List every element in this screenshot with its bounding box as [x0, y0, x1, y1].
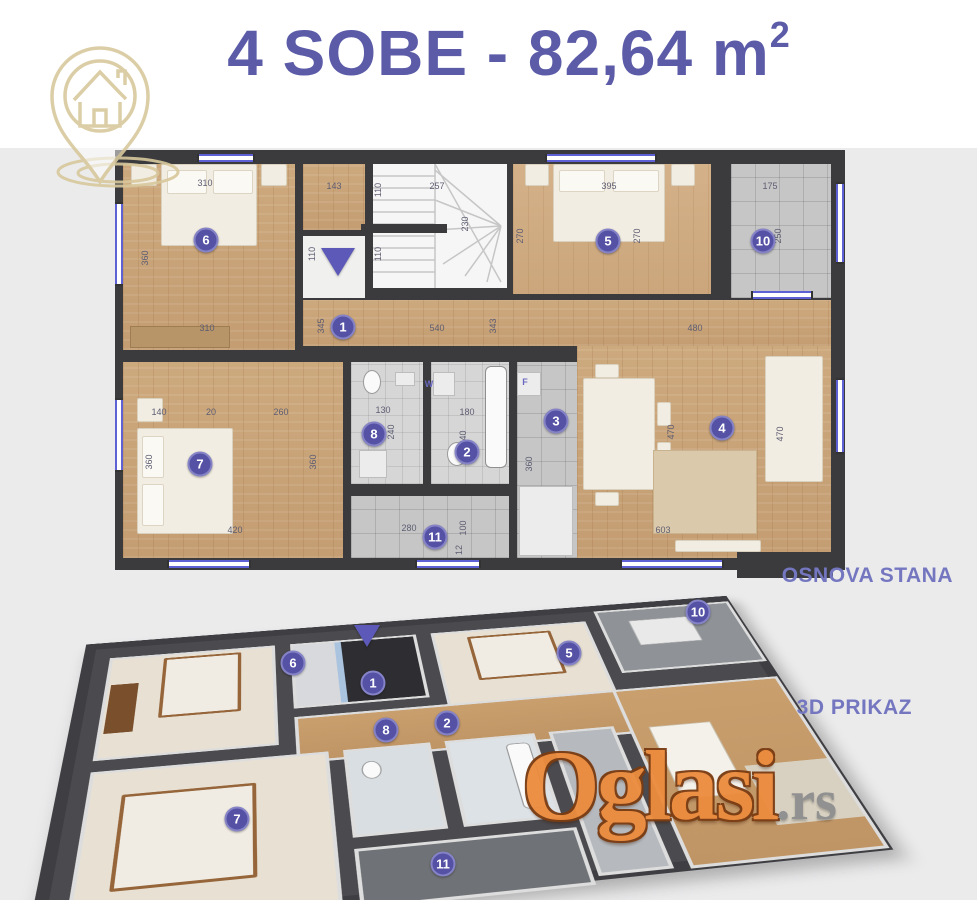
3d-room-7 [64, 751, 343, 900]
dim-label-140: 140 [151, 407, 166, 417]
3d-room-10-terrace [593, 601, 767, 673]
dim-label-270: 270 [515, 228, 525, 243]
fridge [517, 372, 541, 396]
room-marker-3d-2: 2 [435, 711, 460, 736]
dim-label-603: 603 [655, 525, 670, 535]
room-marker-3d-5: 5 [557, 641, 582, 666]
house-pin-logo-graphic [30, 22, 200, 192]
window [836, 378, 844, 454]
room-marker-3d-1: 1 [361, 671, 386, 696]
room-marker-1: 1 [331, 315, 356, 340]
bathtub [485, 366, 507, 468]
room-marker-3d-11: 11 [431, 852, 456, 877]
window [620, 560, 724, 568]
dim-label-395: 395 [601, 181, 616, 191]
dim-label-240: 240 [386, 424, 396, 439]
3d-wood-strip [258, 754, 341, 900]
window [836, 182, 844, 264]
window [415, 560, 481, 568]
3d-bathroom-8 [343, 742, 448, 837]
3d-wardrobe [103, 683, 139, 734]
dim-label-180: 180 [459, 407, 474, 417]
3d-toilet [361, 760, 383, 779]
nightstand [261, 164, 287, 186]
watermark-tld: .rs [776, 773, 837, 829]
entry-arrow-icon [321, 248, 355, 276]
room-marker-5: 5 [596, 229, 621, 254]
caption-3d-prikaz: 3D PRIKAZ [797, 696, 912, 720]
pillow [142, 484, 164, 526]
stair-wall [361, 224, 447, 233]
3d-bed [109, 783, 257, 892]
dim-label-175: 175 [762, 181, 777, 191]
room-marker-3d-10: 10 [686, 600, 711, 625]
chair [657, 402, 671, 426]
tv-unit [675, 540, 761, 552]
balcony-door-window [751, 291, 813, 299]
dim-label-270: 270 [632, 228, 642, 243]
dim-label-360: 360 [308, 454, 318, 469]
room-marker-3: 3 [544, 409, 569, 434]
pillow [559, 170, 605, 192]
room-marker-8: 8 [362, 422, 387, 447]
window [545, 154, 657, 162]
dim-label-310: 310 [199, 323, 214, 333]
room-1-hallway [303, 300, 831, 346]
dim-label-20: 20 [206, 407, 216, 417]
washing-machine [433, 372, 455, 396]
appliance-label-W: W [425, 379, 434, 389]
dim-label-280: 280 [401, 523, 416, 533]
3d-entry-arrow-icon [354, 625, 380, 647]
entry-strip [303, 164, 365, 230]
shower [359, 450, 387, 478]
3d-room-6 [93, 645, 279, 761]
3d-bed [158, 652, 241, 718]
room-marker-6: 6 [194, 228, 219, 253]
house-pin-logo [30, 22, 200, 192]
room-marker-2: 2 [455, 440, 480, 465]
window [115, 398, 123, 472]
dim-label-110: 110 [307, 247, 317, 261]
dim-label-345: 345 [316, 318, 326, 333]
dim-label-110: 110 [373, 247, 383, 261]
appliance-label-F: F [522, 377, 528, 387]
pillow [213, 170, 253, 194]
floor-plan-2d: 3103601431102572301101103952702701752503… [115, 150, 845, 570]
dim-label-360: 360 [144, 454, 154, 469]
dining-table [583, 378, 655, 490]
3d-bed [467, 631, 567, 681]
sink [395, 372, 415, 386]
pillow [613, 170, 659, 192]
real-estate-ad: 4 SOBE - 82,64 m2 [0, 0, 977, 900]
room-marker-3d-8: 8 [374, 718, 399, 743]
dim-label-540: 540 [429, 323, 444, 333]
chair [595, 364, 619, 378]
dim-label-360: 360 [524, 456, 534, 471]
caption-osnova-stana: OSNOVA STANA [782, 564, 953, 588]
window [167, 560, 251, 568]
room-marker-10: 10 [751, 229, 776, 254]
dim-label-130: 130 [375, 405, 390, 415]
dim-label-257: 257 [429, 181, 444, 191]
room-marker-3d-7: 7 [225, 807, 250, 832]
title-superscript: 2 [770, 14, 790, 55]
room-marker-4: 4 [710, 416, 735, 441]
dim-label-343: 343 [488, 318, 498, 333]
dim-label-360: 360 [140, 250, 150, 265]
dim-label-12: 12 [454, 545, 464, 555]
toilet [363, 370, 381, 394]
dim-label-420: 420 [227, 525, 242, 535]
dim-label-230: 230 [460, 216, 470, 231]
room-marker-11: 11 [423, 525, 448, 550]
dim-label-470: 470 [666, 424, 676, 439]
sofa [765, 356, 823, 482]
wardrobe-room6 [130, 326, 230, 348]
chair [595, 492, 619, 506]
dim-label-470: 470 [775, 426, 785, 441]
dim-label-480: 480 [687, 323, 702, 333]
title-text: 4 SOBE - 82,64 m [227, 17, 769, 89]
window [115, 202, 123, 286]
rug [653, 450, 757, 534]
dim-label-100: 100 [458, 520, 468, 535]
room-marker-7: 7 [188, 452, 213, 477]
window [197, 154, 255, 162]
dim-label-110: 110 [373, 183, 383, 197]
kitchen-counter [519, 486, 573, 556]
room-marker-3d-6: 6 [281, 651, 306, 676]
dim-label-143: 143 [326, 181, 341, 191]
nightstand [671, 164, 695, 186]
nightstand [525, 164, 549, 186]
page-title: 4 SOBE - 82,64 m2 [110, 14, 907, 90]
dim-label-260: 260 [273, 407, 288, 417]
oglasi-watermark: Oglasi .rs [522, 736, 837, 836]
watermark-name: Oglasi [522, 736, 776, 836]
